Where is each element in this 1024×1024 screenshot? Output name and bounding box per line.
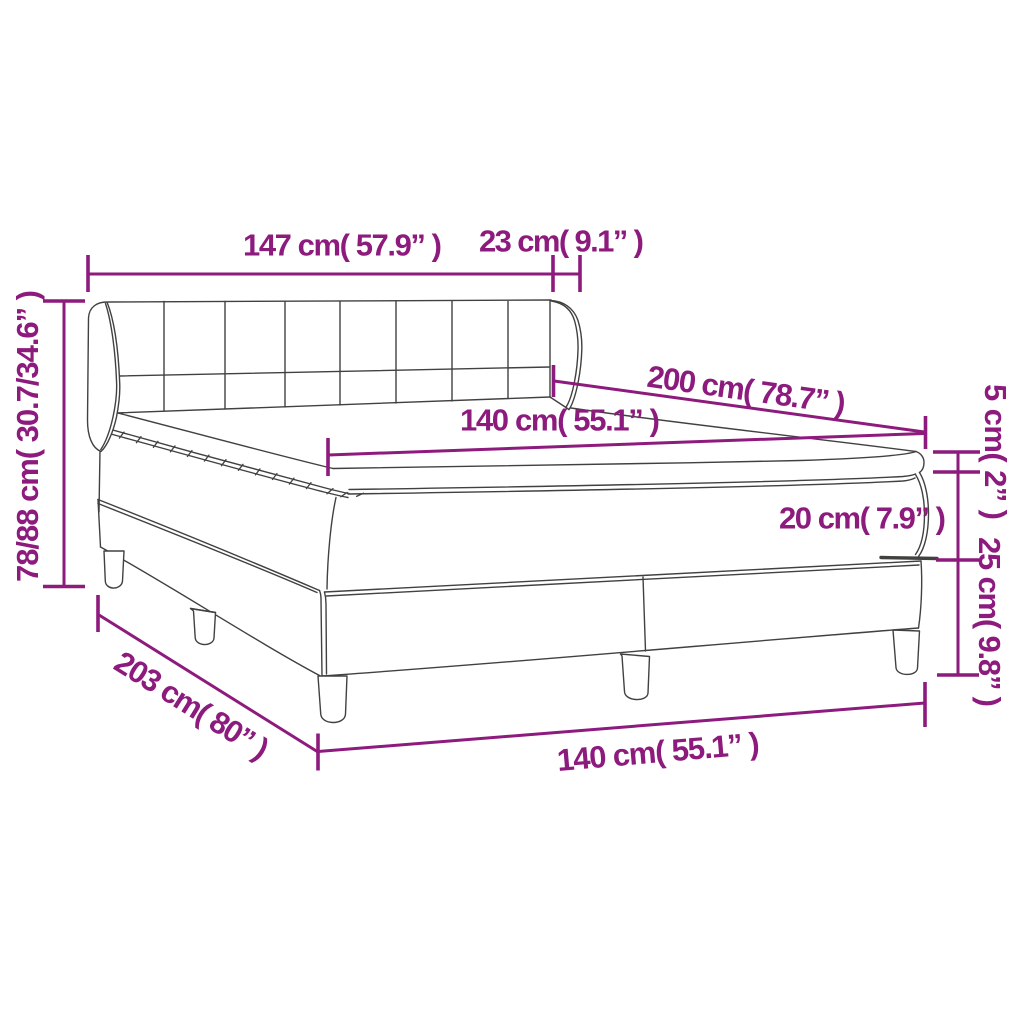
- svg-text:147 cm( 57.9” ): 147 cm( 57.9” ): [243, 228, 442, 263]
- svg-text:25 cm( 9.8” ): 25 cm( 9.8” ): [972, 537, 1007, 707]
- svg-text:5 cm( 2” ): 5 cm( 2” ): [978, 384, 1013, 520]
- svg-text:140 cm( 55.1” ): 140 cm( 55.1” ): [460, 403, 660, 438]
- svg-text:203 cm( 80” ): 203 cm( 80” ): [108, 644, 275, 766]
- svg-text:140 cm( 55.1” ): 140 cm( 55.1” ): [556, 726, 761, 778]
- svg-text:20 cm( 7.9” ): 20 cm( 7.9” ): [779, 501, 946, 536]
- svg-text:78/88 cm( 30.7/34.6” ): 78/88 cm( 30.7/34.6” ): [10, 290, 45, 582]
- svg-text:23 cm( 9.1” ): 23 cm( 9.1” ): [479, 224, 644, 259]
- svg-text:200 cm( 78.7” ): 200 cm( 78.7” ): [645, 359, 848, 421]
